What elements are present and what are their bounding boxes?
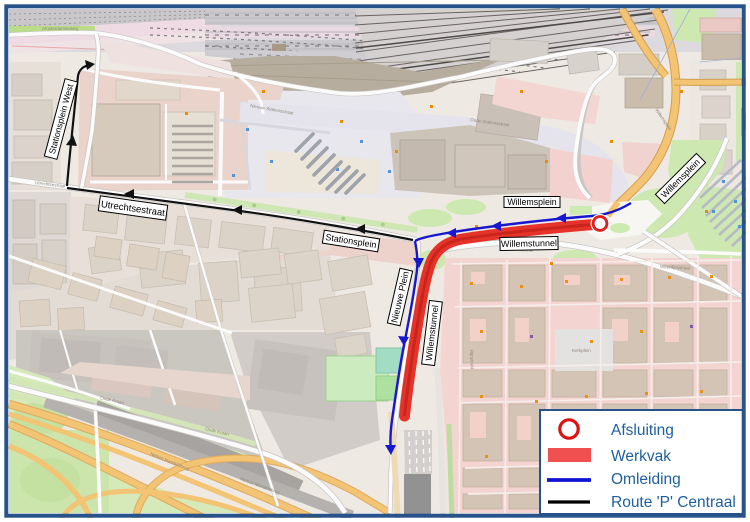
svg-text:Willemsplein: Willemsplein [507, 197, 556, 207]
svg-text:Omleiding: Omleiding [611, 471, 681, 488]
svg-text:Afsluiting: Afsluiting [611, 422, 674, 439]
svg-text:Werkvak: Werkvak [611, 448, 671, 465]
svg-text:Route 'P' Centraal: Route 'P' Centraal [611, 494, 736, 511]
svg-text:Willemstunnel: Willemstunnel [501, 238, 557, 249]
